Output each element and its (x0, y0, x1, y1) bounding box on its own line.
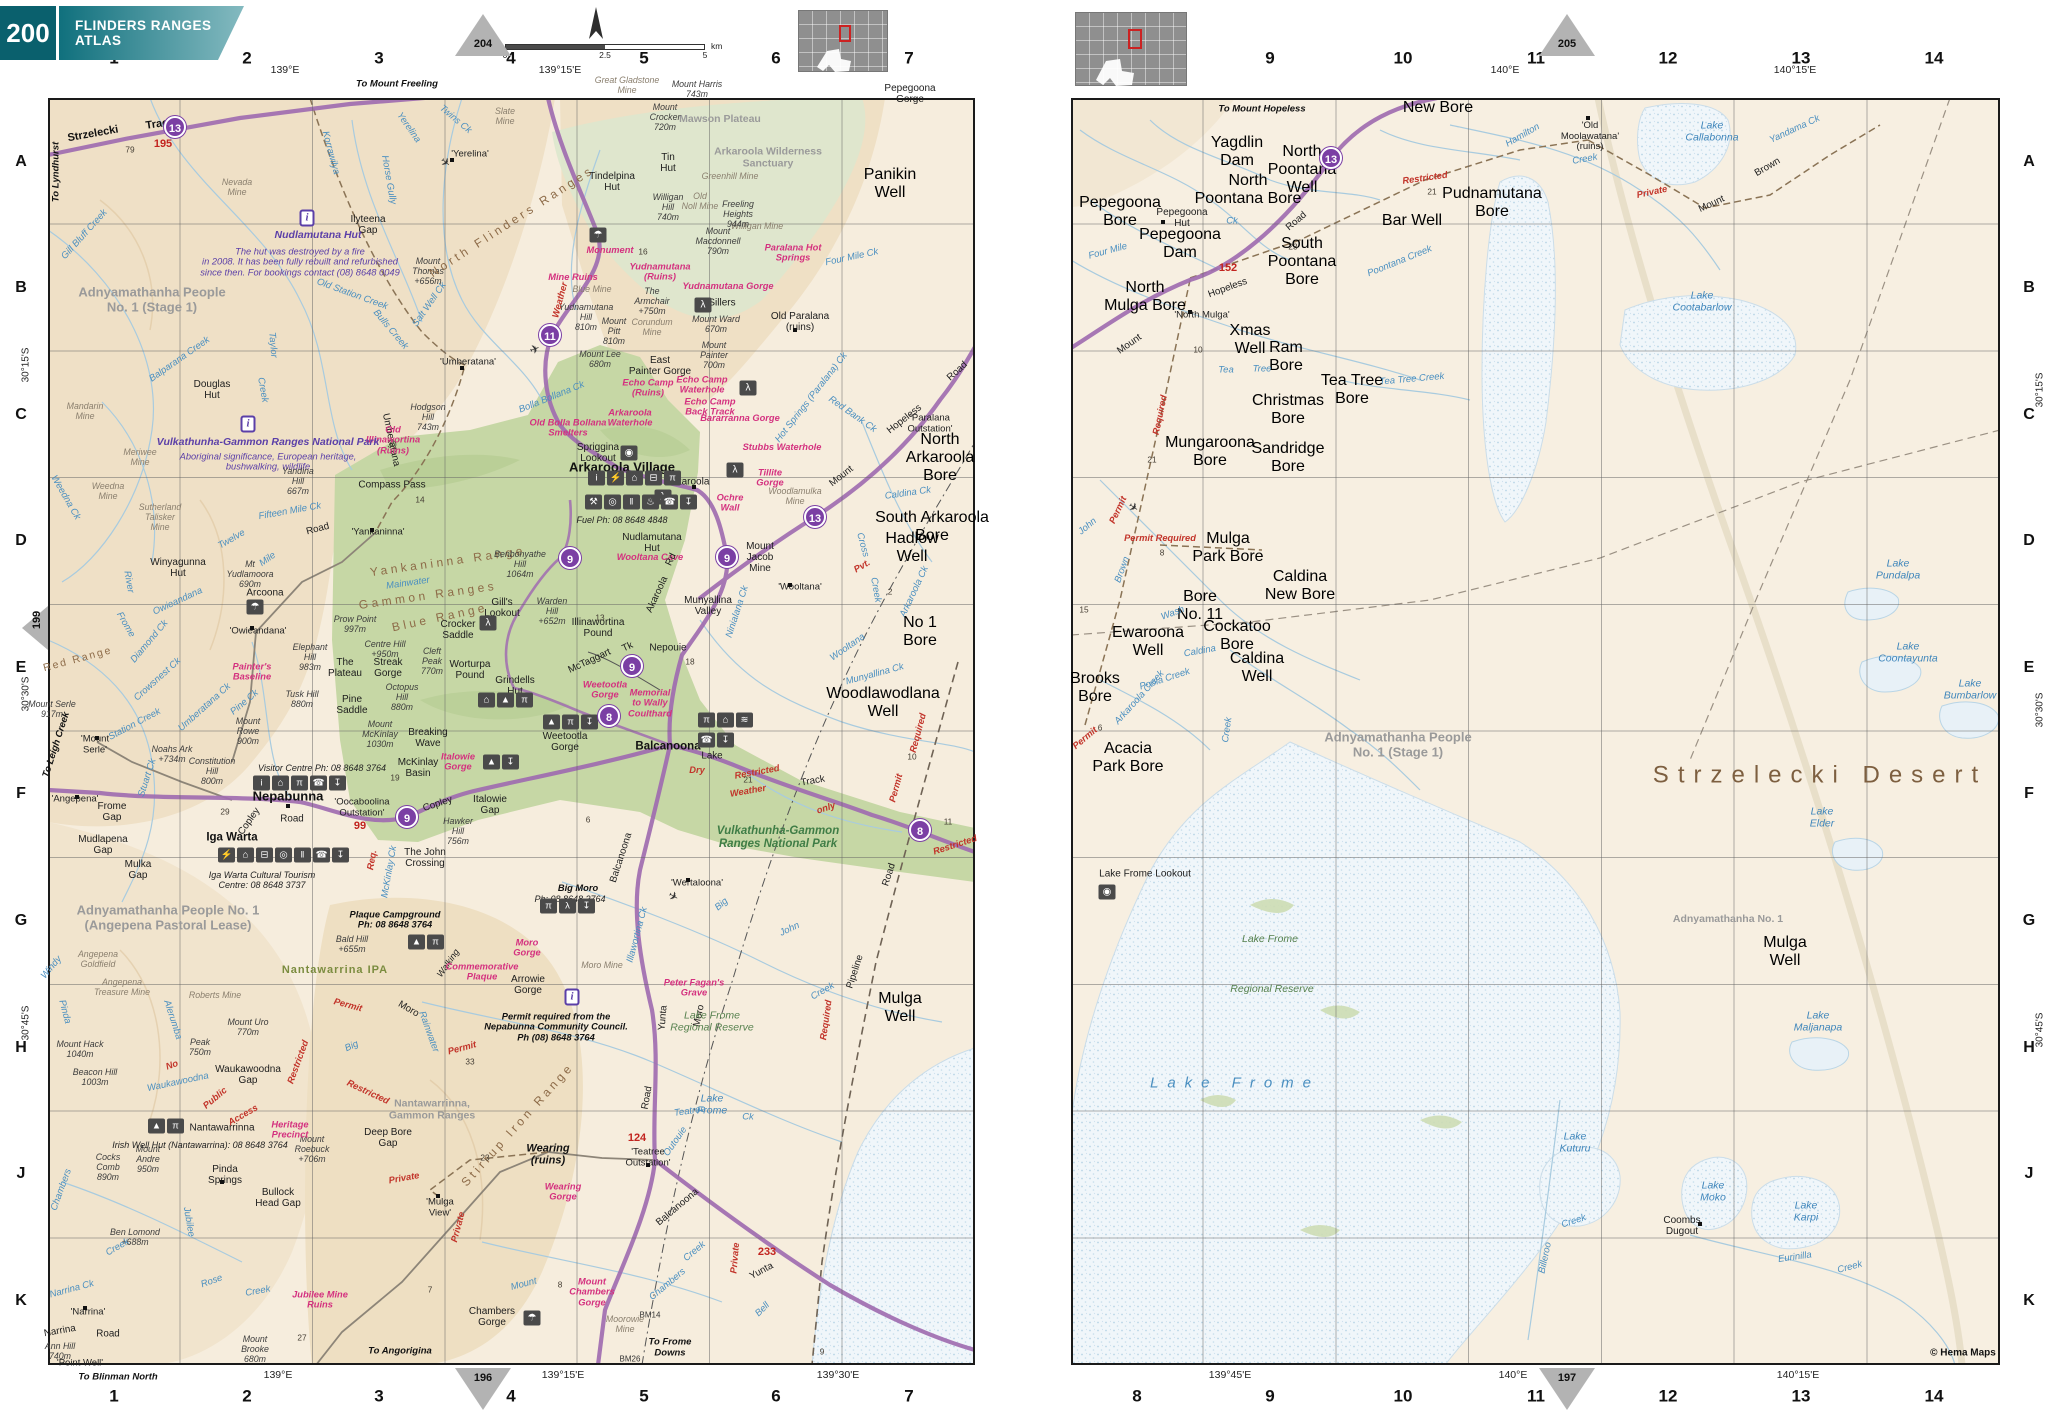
map-label: Creek (868, 577, 883, 604)
map-label: Adnyamathanha No. 1 (1673, 914, 1783, 926)
map-label: Balcanoona (655, 1187, 702, 1229)
map-label: Mudlapena Gap (78, 834, 127, 856)
map-label: Hawker Hill 756m (443, 817, 473, 847)
map-label: Weather (550, 281, 570, 319)
map-label: Mount Macdonnell 790m (696, 227, 741, 257)
map-label: Lake Bumbarlow (1944, 678, 1997, 702)
map-label: Irish Well Hut (Nantawarrina): 08 8648 3… (112, 1140, 287, 1150)
map-label: New Bore (1403, 99, 1473, 117)
map-label: Mount Ward 670m (692, 315, 740, 335)
shelter-icon: ☂ (590, 228, 607, 243)
map-label: 10 (907, 752, 916, 761)
map-label: Waukawoodna (146, 1071, 210, 1094)
map-label: Yandama Ck (1768, 114, 1822, 147)
atlas-title-left: FLINDERS RANGES ATLAS (59, 6, 244, 60)
map-label: Tindelpina Hut (589, 171, 635, 193)
map-label: 99 (354, 820, 366, 832)
map-label: Required (1151, 394, 1170, 436)
map-label: Big (344, 1039, 361, 1054)
map-label: Gammon Ranges (358, 580, 498, 613)
nav-page-197[interactable]: 197 (1539, 1368, 1595, 1410)
map-label: Outouie (662, 1125, 690, 1158)
map-label: Douglas Hut (194, 379, 231, 401)
map-label: Nantawarrinna, Gammon Ranges (389, 1098, 475, 1122)
map-label: 30 (387, 440, 396, 449)
map-label: Ck (1226, 217, 1238, 228)
fuel-icon: ⚡ (218, 848, 235, 863)
map-label: No (164, 1058, 179, 1072)
page-number-left: 200 (0, 6, 56, 60)
map-label: Mount (510, 1276, 538, 1293)
map-label: Streak Gorge (374, 657, 403, 679)
map-label: Jubilee Mine Ruins (292, 1290, 348, 1311)
map-label: Italowie Gap (473, 794, 507, 816)
map-label: Restricted (345, 1078, 391, 1107)
map-label: Nantawarrinna (189, 1122, 254, 1133)
map-label: Mount Chambers Gorge (569, 1276, 614, 1307)
map-label: The hut was destroyed by a fire in 2008.… (200, 246, 400, 277)
picnic-icon: π (540, 899, 557, 914)
tyre-icon: ◎ (275, 848, 292, 863)
map-label: Mulga Well (878, 990, 922, 1026)
map-label: Freeling Heights 944m (722, 200, 754, 230)
route-marker: 9 (621, 655, 643, 677)
route-marker: 8 (598, 705, 620, 727)
map-label: Sillers (708, 297, 735, 308)
lookout-icon: ◉ (621, 446, 638, 461)
map-label: Restricted (285, 1039, 310, 1085)
map-label: Creek (1221, 717, 1235, 744)
map-label: Nudlamutana Hut (622, 532, 681, 554)
map-label: Mount McKinlay 1030m (362, 720, 398, 750)
north-arrow-icon (583, 6, 609, 44)
map-label: 30°15'S (2034, 373, 2045, 408)
nav-page-204[interactable]: 204 (455, 14, 511, 56)
map-label: Old Station Creek (315, 277, 389, 313)
route-marker: 9 (396, 806, 418, 828)
map-label: Big Moro (558, 883, 598, 893)
map-label: F (16, 785, 26, 803)
map-label: Sutherland Talisker Mine (139, 503, 182, 533)
map-label: Tea Tree Creek (1379, 372, 1445, 388)
facility-icons: ▲π↧ (543, 715, 598, 730)
map-label: Red Range (42, 645, 114, 675)
map-label: Poola Creek (1138, 667, 1191, 693)
map-label: Iga Warta (206, 832, 257, 845)
map-label: Yankaninna Range (369, 544, 527, 579)
map-label: 30°15'S (20, 348, 31, 383)
map-label: Korrawilya (319, 130, 341, 176)
tent-icon: ▲ (148, 1119, 165, 1134)
map-label: Bulls Creek (370, 308, 409, 352)
map-label: The Armchair +750m (634, 287, 669, 317)
map-label: Waukawoodna Gap (215, 1064, 281, 1086)
map-label: D (2023, 532, 2035, 550)
map-label: 33 (465, 1057, 474, 1066)
map-label: 30°45'S (2034, 1013, 2045, 1048)
map-label: Tin Hut (660, 152, 676, 174)
map-label: Angepena Treasure Mine (94, 978, 150, 998)
settlement-marker (1161, 220, 1165, 224)
route-marker: 13 (804, 506, 826, 528)
tap-icon: ↧ (581, 715, 598, 730)
map-label: Pepegoona Bore (1079, 194, 1161, 230)
map-label: Creek (245, 1285, 272, 1300)
map-label: Panikin Well (864, 166, 916, 202)
map-label: Salt Well Ck (411, 281, 449, 329)
map-label: Private (1636, 184, 1669, 201)
map-label: Station Creek (107, 707, 163, 743)
map-label: Arkaroola Creek (1113, 669, 1167, 727)
map-label: To Angorigina (368, 1347, 432, 1358)
map-label: Hamilton (1504, 122, 1542, 150)
tent-icon: ▲ (408, 935, 425, 950)
map-label: Weedna Mine (92, 482, 125, 502)
label-layer: 12345678910111213141234567891011121314AB… (0, 0, 2048, 1415)
map-label: Balcanoona (635, 741, 700, 754)
facility-icons: ⚡⌂⊟◎‖☎↧ (218, 848, 349, 863)
map-label: Lake Moko (1700, 1180, 1726, 1204)
map-label: 139°E (264, 1370, 293, 1382)
route-marker: 13 (1320, 147, 1342, 169)
map-label: South Poontana Bore (1268, 235, 1337, 289)
map-label: 23 (480, 1153, 489, 1162)
map-label: Moro (396, 1000, 421, 1021)
bed-icon: ⌂ (237, 848, 254, 863)
map-label: Compass Pass (358, 479, 425, 490)
map-label: Big (713, 897, 730, 914)
map-label: Echo Camp Waterhole (676, 375, 727, 396)
map-label: G (15, 912, 27, 930)
nav-page-196[interactable]: 196 (455, 1368, 511, 1410)
map-label: Woodlawodlana Well (826, 685, 940, 721)
settlement-marker (686, 878, 690, 882)
map-label: Wash (1160, 605, 1186, 623)
map-label: Blue Mine (572, 285, 611, 295)
map-label: Ochre Wall (717, 493, 744, 514)
toilet-icon: ‖ (294, 848, 311, 863)
map-label: Road (641, 1086, 656, 1111)
bed-icon: ⌂ (272, 776, 289, 791)
phone-icon: ☎ (698, 733, 715, 748)
picnic-icon: π (427, 935, 444, 950)
nav-page-199[interactable]: 199 (22, 606, 48, 650)
map-label: Weetootla Gorge (583, 680, 627, 701)
map-label: D (15, 532, 27, 550)
map-label: 'Yankaninna' (351, 528, 404, 539)
map-label: 13 (595, 613, 604, 622)
shelter-icon: ☂ (524, 1311, 541, 1326)
map-label: Ninialana Ck (725, 585, 752, 640)
map-label: 12 (1659, 1386, 1678, 1405)
map-label: Tusk Hill 880m (285, 690, 318, 710)
map-label: Cleft Peak 770m (421, 647, 443, 677)
map-label: 233 (758, 1246, 776, 1258)
facility-icons: i⚡⌂⊟π (588, 471, 681, 486)
map-label: Brooks Bore (1070, 670, 1120, 706)
bed-icon: ⌂ (478, 693, 495, 708)
map-label: Bararranna Gorge (700, 413, 780, 423)
map-credit: © Hema Maps (1930, 1348, 1996, 1359)
map-label: ✈ (1125, 500, 1141, 517)
map-label: Mount Thomas +656m (412, 257, 444, 287)
map-label: Lake Coontayunta (1878, 641, 1938, 665)
map-label: Hopeless (886, 403, 925, 437)
settlement-marker (95, 736, 99, 740)
map-label: Paralana Hot Springs (765, 243, 822, 264)
map-label: Creek (682, 1240, 708, 1264)
map-label: Mine Ruins (548, 272, 598, 282)
map-label: McKinlay Basin (398, 757, 439, 779)
map-label: Private (449, 1211, 467, 1244)
map-label: Ram Bore (1269, 339, 1303, 375)
map-label: C (15, 406, 27, 424)
settlement-marker (83, 1306, 87, 1310)
map-label: G (2023, 912, 2035, 930)
map-label: Peter Fagan's Grave (664, 978, 725, 999)
map-label: Lake Frome Lookout (1099, 868, 1191, 879)
map-label: F (2024, 785, 2034, 803)
info-icon: i (241, 416, 256, 433)
map-label: Mainwater (386, 576, 431, 593)
settlement-marker (250, 626, 254, 630)
map-label: Mulga Well (1763, 934, 1807, 970)
map-label: Plaque Campground Ph: 08 8648 3764 (350, 910, 441, 931)
map-label: To Lyndhurst (52, 142, 63, 202)
map-label: Hodgson Hill 743m (410, 403, 445, 433)
map-label: 140°E (1491, 65, 1520, 77)
facility-icons: i⌂π☎↧ (253, 776, 346, 791)
map-label: Noahs Ark +734m (152, 745, 193, 765)
picnic-icon: π (167, 1119, 184, 1134)
map-label: 139°15'E (539, 65, 581, 77)
map-label: Arkaroola Wilderness Sanctuary (714, 146, 822, 170)
map-label: Alerumba (161, 999, 184, 1041)
map-label: Fifteen Mile Ck (258, 501, 322, 522)
map-label: Creek (104, 1237, 131, 1259)
picnic-icon: π (291, 776, 308, 791)
map-label: Blue Range (391, 601, 489, 634)
map-label: Caldina Well (1230, 650, 1284, 686)
map-label: 140°15'E (1774, 65, 1816, 77)
map-label: 'Mulga View' (426, 1197, 454, 1218)
map-label: 6 (586, 815, 591, 824)
map-label: Ilyteena Gap (350, 214, 385, 236)
map-label: Yunta (657, 1005, 670, 1031)
map-label: Brown (1113, 556, 1132, 585)
facility-icons: ▲↧ (483, 755, 519, 770)
picnic-icon: π (664, 471, 681, 486)
map-label: Twelve (217, 528, 248, 552)
map-label: ✈ (665, 889, 680, 906)
fire-icon: ♨ (642, 495, 659, 510)
map-label: 139°E (271, 65, 300, 77)
map-label: Bar Well (1382, 212, 1442, 230)
map-label: Illawortina Ck (625, 906, 650, 964)
map-label: Lake Callabonna (1685, 120, 1738, 144)
map-label: Moorowie Mine (606, 1315, 644, 1335)
map-label: Munyallina Valley (684, 595, 732, 617)
map-label: Permit required from the Nepabunna Commu… (484, 1011, 628, 1042)
walk-icon: λ (740, 381, 757, 396)
map-label: No 1 Bore (903, 614, 937, 650)
caravan-icon: ⊟ (256, 848, 273, 863)
map-label: Pudnamutana Bore (1442, 185, 1542, 221)
map-label: A (2023, 153, 2035, 171)
map-label: C (2023, 406, 2035, 424)
map-label: Munyallina Ck (845, 662, 905, 688)
map-label: Rainwater (416, 1010, 441, 1054)
map-label: Meriwee Mine (123, 448, 156, 468)
map-label: 'Wooltana' (778, 583, 822, 594)
map-label: BM14 (640, 1312, 661, 1321)
map-label: 195 (154, 138, 172, 150)
map-label: 9 (1265, 48, 1274, 67)
map-label: North Poontana Bore (1195, 172, 1302, 208)
map-label: To Mount Hopeless (1218, 105, 1305, 116)
map-label: Vulkathunha-Gammon Ranges National Park (717, 825, 839, 851)
map-label: Owieandana (152, 586, 205, 618)
map-label: Diamond Ck (129, 619, 171, 666)
map-label: 140°15'E (1777, 1370, 1819, 1382)
map-label: Roberts Mine (189, 991, 241, 1001)
map-label: 8 (558, 1280, 563, 1289)
settlement-marker (286, 804, 290, 808)
map-label: Mungaroona Bore (1165, 434, 1255, 470)
map-label: Yerelina (394, 111, 422, 145)
map-label: Mount Uro 770m (227, 1018, 268, 1038)
map-label: Hopeless (1207, 277, 1249, 301)
map-label: Yudnamutana Hill 810m (559, 303, 613, 333)
map-label: Frome Gap (98, 801, 127, 823)
map-label: Lake Frome (1242, 934, 1298, 946)
map-label: Wooltana (829, 632, 868, 664)
map-label: Arkaroola Waterhole (608, 408, 653, 429)
map-label: Echo Camp Back Track (684, 397, 735, 418)
map-label: 2 (242, 48, 251, 67)
map-label: Wearing (ruins) (526, 1143, 569, 1168)
locator-inset-right (1075, 12, 1187, 86)
map-label: Bald Hill +655m (336, 935, 368, 955)
map-label: Permit (1071, 725, 1100, 752)
settlement-marker (646, 1163, 650, 1167)
map-label: Road (305, 522, 330, 539)
map-label: 9 (1265, 1386, 1274, 1405)
map-label: Taylor (266, 332, 279, 358)
map-label: 'Old Moolawatana' (ruins) (1561, 121, 1619, 153)
map-label: North Arkaroola Bore (906, 431, 974, 485)
map-label: Billeroo (1538, 1241, 1555, 1274)
map-label: only (815, 800, 836, 816)
map-label: Akaroola (645, 575, 671, 615)
map-label: North Flinders Ranges (427, 164, 597, 281)
map-label: Lake Frome (1150, 1076, 1320, 1093)
map-label: Ann Hill 740m (45, 1342, 75, 1362)
nav-page-205[interactable]: 205 (1539, 14, 1595, 56)
tap-icon: ↧ (717, 733, 734, 748)
map-label: Chambers (50, 1168, 75, 1213)
map-label: H (15, 1039, 27, 1057)
map-label: 'Yerelina' (451, 150, 489, 161)
map-label: Mulga Park Bore (1192, 530, 1263, 566)
info-icon: i (253, 776, 270, 791)
map-label: Caldina New Bore (1265, 568, 1335, 604)
map-label: Fuel Ph: 08 8648 4848 (576, 515, 667, 525)
map-label: River (121, 570, 135, 594)
map-label: Road (881, 862, 899, 888)
map-label: Pine Ck (229, 688, 261, 718)
map-label: Copley (422, 795, 454, 815)
map-label: Regional Reserve (1230, 984, 1313, 996)
lookout-icon: ◉ (1099, 885, 1116, 900)
map-label: 23 (1288, 242, 1297, 251)
map-label: Mount Andre 950m (136, 1145, 160, 1175)
map-label: Mount Rowe 900m (236, 717, 260, 747)
map-label: Hot Springs (Paralana) Ck (774, 351, 851, 445)
map-label: 16 (638, 247, 647, 256)
map-label: Illinawortina Pound (572, 617, 625, 639)
map-label: Narrina (43, 1324, 77, 1340)
map-label: A (15, 153, 27, 171)
map-label: Weetootla Gorge (543, 731, 588, 753)
map-label: 21 (743, 775, 752, 784)
map-label: Road (946, 360, 971, 384)
wrench-icon: ⚒ (585, 495, 602, 510)
map-label: 14 (415, 495, 424, 504)
phone-icon: ☎ (661, 495, 678, 510)
map-label: Umberatana (379, 412, 401, 467)
map-label: Cross (854, 532, 871, 559)
map-label: Benbonyathe Hill 1064m (494, 550, 546, 580)
map-label: 'Umberatana' (440, 358, 496, 369)
map-label: 1 (109, 1386, 118, 1405)
map-label: To Mount Freeling (356, 80, 438, 91)
map-label: East Painter Gorge (629, 355, 691, 377)
info-icon: i (588, 471, 605, 486)
map-label: J (17, 1165, 26, 1183)
route-marker: 9 (716, 546, 738, 568)
map-label: Pepegoona Dam (1139, 226, 1221, 262)
map-label: K (2023, 1292, 2035, 1310)
map-label: Private (728, 1242, 741, 1274)
tap-icon: ↧ (329, 776, 346, 791)
settlement-marker (793, 328, 797, 332)
map-label: Windy (39, 955, 64, 982)
map-label: 2 (888, 587, 893, 596)
map-label: Creek (1560, 1213, 1587, 1231)
map-label: Adnyamathanha People No. 1 (Stage 1) (1324, 730, 1471, 759)
map-label: Creek (255, 377, 270, 404)
map-label: Four Mile Ck (825, 247, 880, 269)
map-label: 140°E (1499, 1370, 1528, 1382)
map-label: Nudlamutana Hut (275, 230, 362, 242)
map-label: Chambers (648, 1267, 688, 1303)
map-label: Memorial to Wally Coulthard (628, 687, 672, 718)
map-label: Breaking Wave (408, 727, 447, 749)
map-label: 'Owieandana' (230, 627, 287, 638)
map-label: BM26 (620, 1356, 641, 1365)
map-label: Dry (689, 765, 705, 775)
map-label: McTaggart (567, 647, 613, 676)
map-label: Moro Gorge (513, 938, 540, 959)
map-label: 6 (1098, 723, 1103, 732)
map-label: Adnyamathanha People No. 1 (Stage 1) (78, 285, 225, 314)
map-label: Warden Hill +652m (537, 597, 568, 627)
map-label: Willigan Mine (731, 222, 783, 232)
tap-icon: ↧ (502, 755, 519, 770)
map-label: Lake Kuturu (1560, 1131, 1591, 1155)
map-label: Restricted (1402, 170, 1448, 187)
